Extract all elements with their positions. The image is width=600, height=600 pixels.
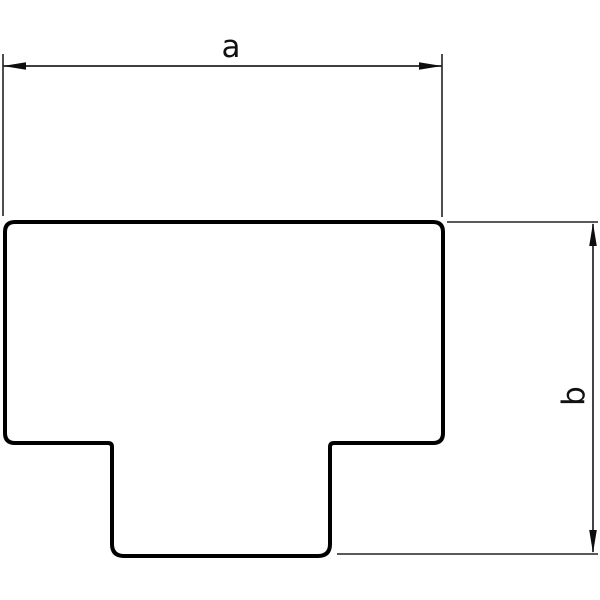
technical-drawing-canvas: a b <box>0 0 600 600</box>
dimension-label-a: a <box>222 29 241 65</box>
t-piece-outline <box>5 222 443 556</box>
arrowhead-a-right <box>419 62 442 70</box>
arrowhead-b-down <box>589 530 597 553</box>
arrowhead-b-up <box>589 223 597 246</box>
dimension-label-b: b <box>556 386 592 406</box>
arrowhead-a-left <box>3 62 26 70</box>
drawing-area: a b <box>0 0 600 600</box>
